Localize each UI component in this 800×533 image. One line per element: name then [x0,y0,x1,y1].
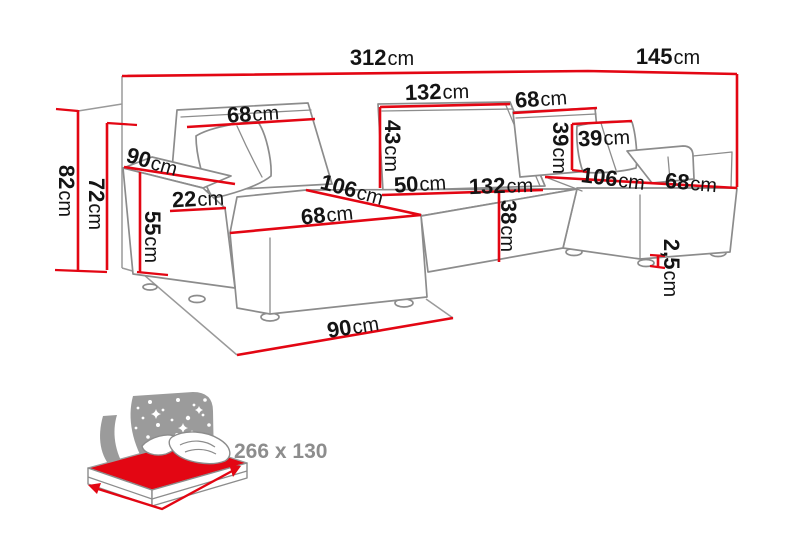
sofa-leg [189,296,205,303]
sofa-outline [123,102,737,321]
sofa-leg [143,284,157,290]
dim-armrest-height-label: 55cm [140,211,165,263]
dim-total-height-label: 82cm [54,165,79,217]
dim-right-seat-width-label: 68cm [664,168,718,197]
dim-right-depth-label: 145cm [636,44,700,69]
dim-back-left-width-label: 68cm [226,99,280,128]
tick [107,123,137,125]
sofa-dimension-diagram: 312cm 145cm 132cm 68cm 68cm 43cm 39cm 39… [0,0,800,533]
dim-pillow-height-label: 39cm [548,122,573,174]
dim-back-panel-height-label: 72cm [84,178,109,230]
dim-armrest-width-label: 22cm [171,185,224,213]
wall-top-guide [78,104,122,111]
tick [55,270,107,272]
dim-backrest-height-label: 43cm [380,120,405,172]
dim-mid-seat-width-label: 132cm [468,172,533,199]
sleeping-area-label: 266 x 130 [234,440,327,463]
dim-seat-depth-label: 50cm [393,169,447,198]
tick [56,109,78,111]
dimension-diagram-canvas: 312cm 145cm 132cm 68cm 68cm 43cm 39cm 39… [0,0,800,533]
dim-leg-height-label: 2,5cm [659,239,684,297]
dim-back-right-width-label: 68cm [514,84,568,113]
dim-pillow-width-label: 39cm [577,124,630,152]
dim-seat-height-label: 38cm [496,200,521,252]
right-chaise [563,188,737,259]
sofa-bed-icon [88,392,247,509]
dim-back-mid-width-label: 132cm [404,78,469,105]
dim-chaise-floor-depth-label: 90cm [325,310,380,343]
dim-total-width-label: 312cm [350,45,414,70]
dim-line-total-width [122,71,737,76]
floor-guide-right [426,299,453,318]
